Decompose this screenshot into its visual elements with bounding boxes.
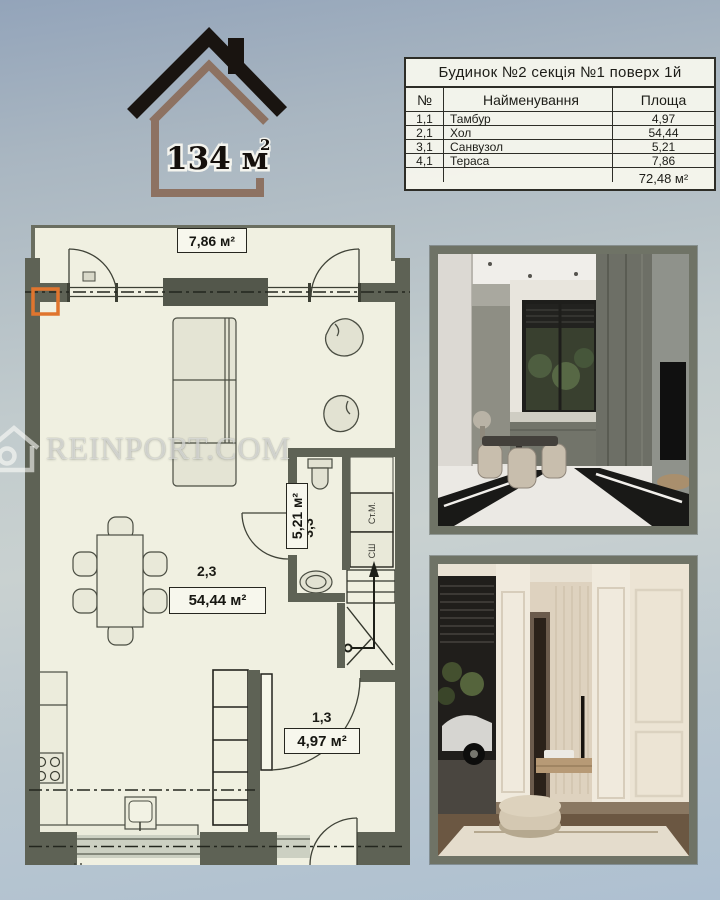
logo-chimney [228, 38, 244, 74]
facade-fixture [83, 272, 95, 281]
table-total-area: 72,48 м² [613, 168, 714, 189]
table-row-num: 1,1 [406, 112, 444, 126]
table-row-num: 4,1 [406, 154, 444, 168]
table-row-name: Хол [444, 126, 613, 140]
table-row-num: 2,1 [406, 126, 444, 140]
slim-lamp [581, 696, 585, 758]
table-row-name: Тамбур [444, 112, 613, 126]
floor-plan: 7,86 м² 2,3 54,44 м² 3,3 5,21 м² Ст.М. С… [25, 225, 410, 865]
table-row-area: 4,97 [613, 112, 714, 126]
col-header-area: Площа [613, 88, 714, 112]
table-total-spacer [406, 168, 444, 182]
tambour-area-label: 4,97 м² [284, 728, 360, 754]
wardrobe [213, 670, 248, 825]
terrace-area-label: 7,86 м² [177, 228, 247, 253]
dryer-cabinet-label: СШ [367, 544, 377, 559]
logo-area-sup: 2 [260, 136, 270, 154]
logo-roof-black [132, 37, 282, 114]
hall-number-label: 2,3 [197, 563, 216, 579]
page-background: 134 м 2 Будинок №2 секція №1 поверх 1й №… [0, 0, 720, 900]
rug [438, 826, 689, 856]
plant-2 [324, 396, 359, 432]
hallway-render [438, 564, 689, 856]
bathroom-area-label: 5,21 м² [286, 483, 308, 549]
table-row-name: Тераса [444, 154, 613, 168]
kitchen-render [438, 254, 689, 526]
kitchen-sink [125, 797, 156, 831]
hall-window [438, 576, 496, 824]
pouf [499, 795, 561, 838]
interior-photo-kitchen [430, 246, 697, 534]
tambour-number-label: 1,3 [312, 709, 331, 725]
table-row-area: 5,21 [613, 140, 714, 154]
sofa [173, 318, 236, 486]
table-row-num: 3,1 [406, 140, 444, 154]
table-total-spacer [444, 168, 613, 182]
table-row-name: Санвузол [444, 140, 613, 154]
col-header-name: Найменування [444, 88, 613, 112]
table-row-area: 7,86 [613, 154, 714, 168]
table-title: Будинок №2 секція №1 поверх 1й [406, 59, 714, 88]
logo-area-text: 134 м [166, 141, 268, 177]
washing-machine-label: Ст.М. [367, 502, 377, 524]
hall-area-label: 54,44 м² [169, 587, 266, 614]
col-header-num: № [406, 88, 444, 112]
area-table: Будинок №2 секція №1 поверх 1й № Наймену… [404, 57, 716, 191]
floor-plan-drawing [25, 225, 410, 865]
logo-house-icon: 134 м 2 [122, 22, 302, 200]
table-row-area: 54,44 [613, 126, 714, 140]
logo: 134 м 2 [122, 22, 302, 200]
bath-sink [300, 571, 332, 593]
interior-photo-hallway [430, 556, 697, 864]
tv-panel [660, 362, 686, 460]
kitchen-window [524, 302, 596, 412]
table-grid: № Найменування Площа 1,1 Тамбур 4,97 2,1… [406, 88, 714, 189]
plant-1 [326, 319, 364, 356]
